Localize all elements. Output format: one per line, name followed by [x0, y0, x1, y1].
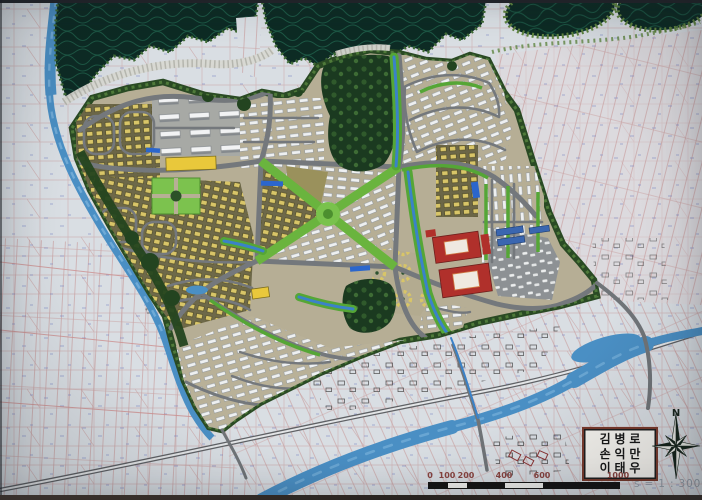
scale-tick-labels: 0 100 200 400 600 1000 [428, 471, 628, 480]
school-site-south [251, 287, 269, 299]
master-plan-map [0, 0, 702, 500]
photo-edge-top [0, 0, 702, 3]
designer-name-2: 손익만 [596, 447, 644, 462]
photo-edge-left [0, 0, 2, 500]
school-site [166, 156, 216, 171]
scale-ratio-text: s = 1 : 3000 [634, 478, 702, 490]
scale-tick: 400 [496, 471, 513, 480]
square-park [152, 178, 200, 214]
scale-tick: 100 [439, 471, 456, 480]
pond [186, 286, 208, 295]
scale-bar-segments [428, 482, 620, 489]
designer-name-1: 김병로 [596, 432, 644, 447]
scale-tick: 600 [534, 471, 551, 480]
scale-tick: 1000 [607, 471, 629, 480]
rowhouse-north-central [240, 98, 324, 168]
scale-bar: 0 100 200 400 600 1000 [428, 471, 628, 493]
photo-edge-bottom [0, 495, 702, 500]
scale-tick: 0 [427, 471, 433, 480]
yellow-housing-east [436, 145, 478, 217]
scale-tick: 200 [458, 471, 475, 480]
master-plan-photo: 김병로 손익만 이태우 N 0 100 200 400 600 1000 [0, 0, 702, 500]
compass-rose-icon [650, 409, 702, 483]
